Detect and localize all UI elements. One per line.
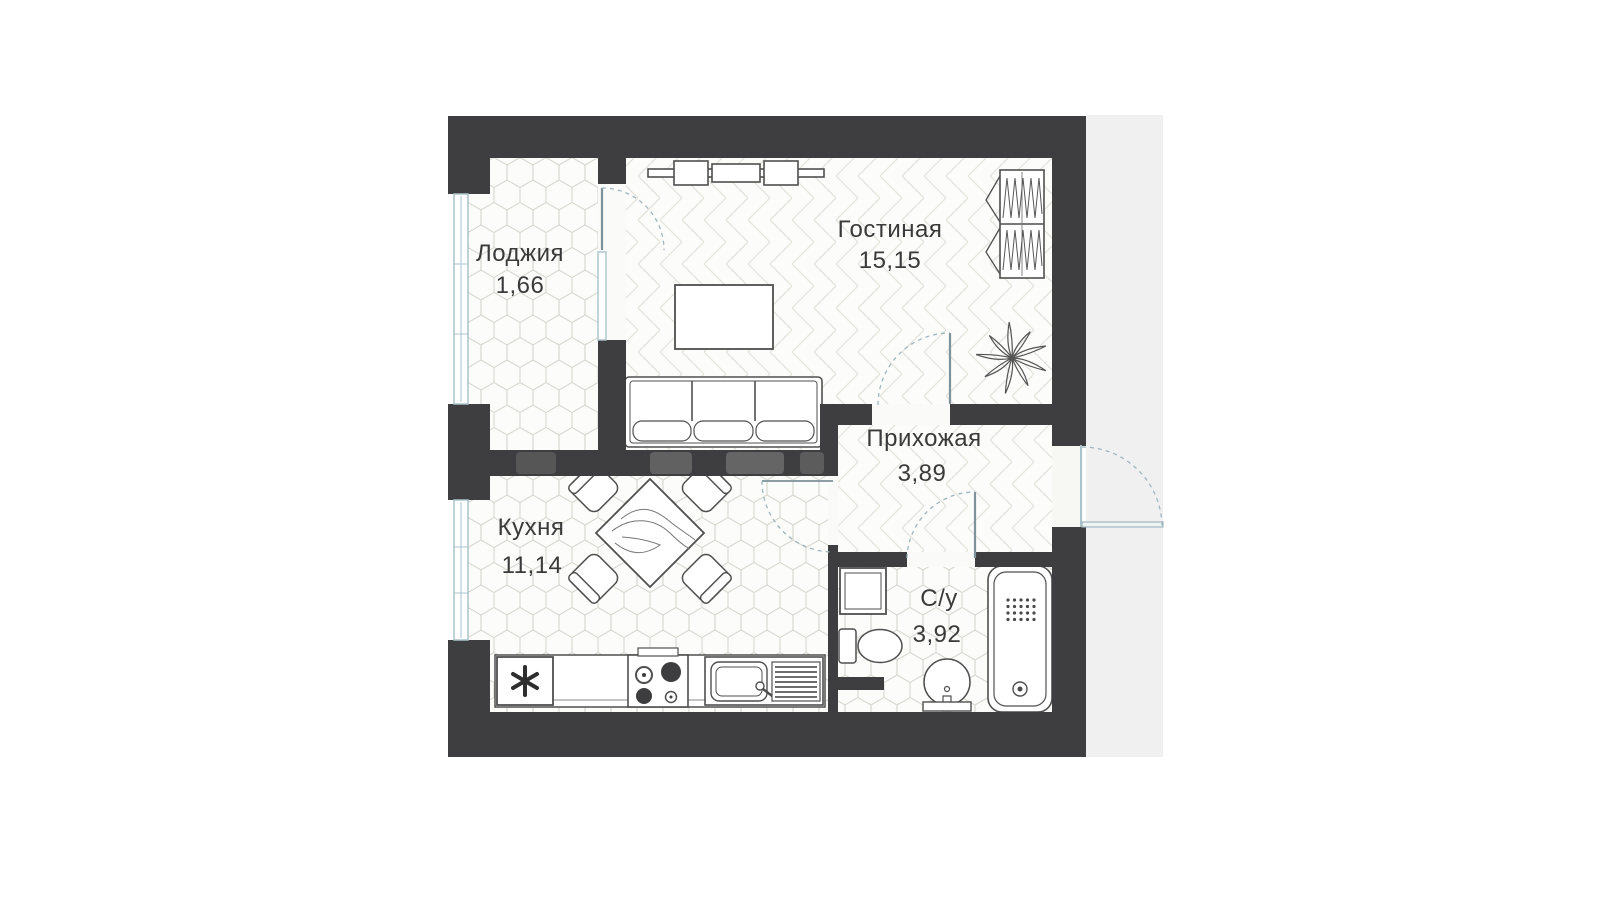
entrance-threshold-floor [1052, 445, 1083, 527]
room-name-loggia: Лоджия [476, 240, 564, 267]
sofa [625, 377, 822, 447]
room-name-hallway: Прихожая [866, 425, 981, 452]
wall-loggia-partition-bottom [598, 340, 626, 476]
floor-plan-page: Лоджия 1,66 Гостиная 15,15 Прихожая 3,89… [0, 0, 1600, 900]
room-name-kitchen: Кухня [498, 514, 565, 541]
kitchen-sink [705, 657, 823, 705]
loggia-glazing [598, 252, 606, 340]
bathroom-doorway [907, 552, 975, 567]
bathtub [988, 566, 1052, 712]
wall-bottom [448, 712, 1086, 757]
room-area-kitchen: 11,14 [502, 552, 563, 579]
wall-bathroom-west [828, 545, 838, 712]
wall-bathroom-duct-stub [838, 677, 884, 690]
wall-right-upper [1052, 116, 1086, 446]
wall-top [448, 116, 1086, 158]
wash-basin [923, 659, 971, 711]
room-area-bathroom: 3,92 [913, 621, 962, 648]
room-area-hallway: 3,89 [898, 460, 947, 487]
loggia-window [454, 194, 468, 404]
wall-loggia-partition-top [598, 158, 626, 184]
wall-living-south-right [950, 404, 1086, 425]
tv-unit [648, 161, 824, 185]
wall-bathroom-north-left [838, 552, 907, 567]
coffee-table [675, 285, 773, 349]
room-name-living: Гостиная [838, 216, 943, 243]
fridge [497, 657, 553, 705]
washing-machine [840, 568, 886, 614]
toilet [839, 629, 902, 663]
wall-bathroom-north-right [975, 552, 1052, 567]
wall-left-top-block [448, 158, 490, 194]
living-doorway [872, 404, 950, 425]
wall-living-south-stub [820, 404, 872, 425]
side-strip [1086, 115, 1163, 757]
wall-left-bottom-block [448, 640, 490, 712]
kitchen-doorway [828, 476, 838, 545]
room-area-loggia: 1,66 [496, 272, 545, 299]
stove [628, 648, 688, 707]
kitchen-window [454, 500, 468, 640]
room-name-bathroom: С/у [920, 585, 958, 612]
floor-plan: Лоджия 1,66 Гостиная 15,15 Прихожая 3,89… [0, 0, 1600, 900]
room-area-living: 15,15 [859, 247, 922, 274]
